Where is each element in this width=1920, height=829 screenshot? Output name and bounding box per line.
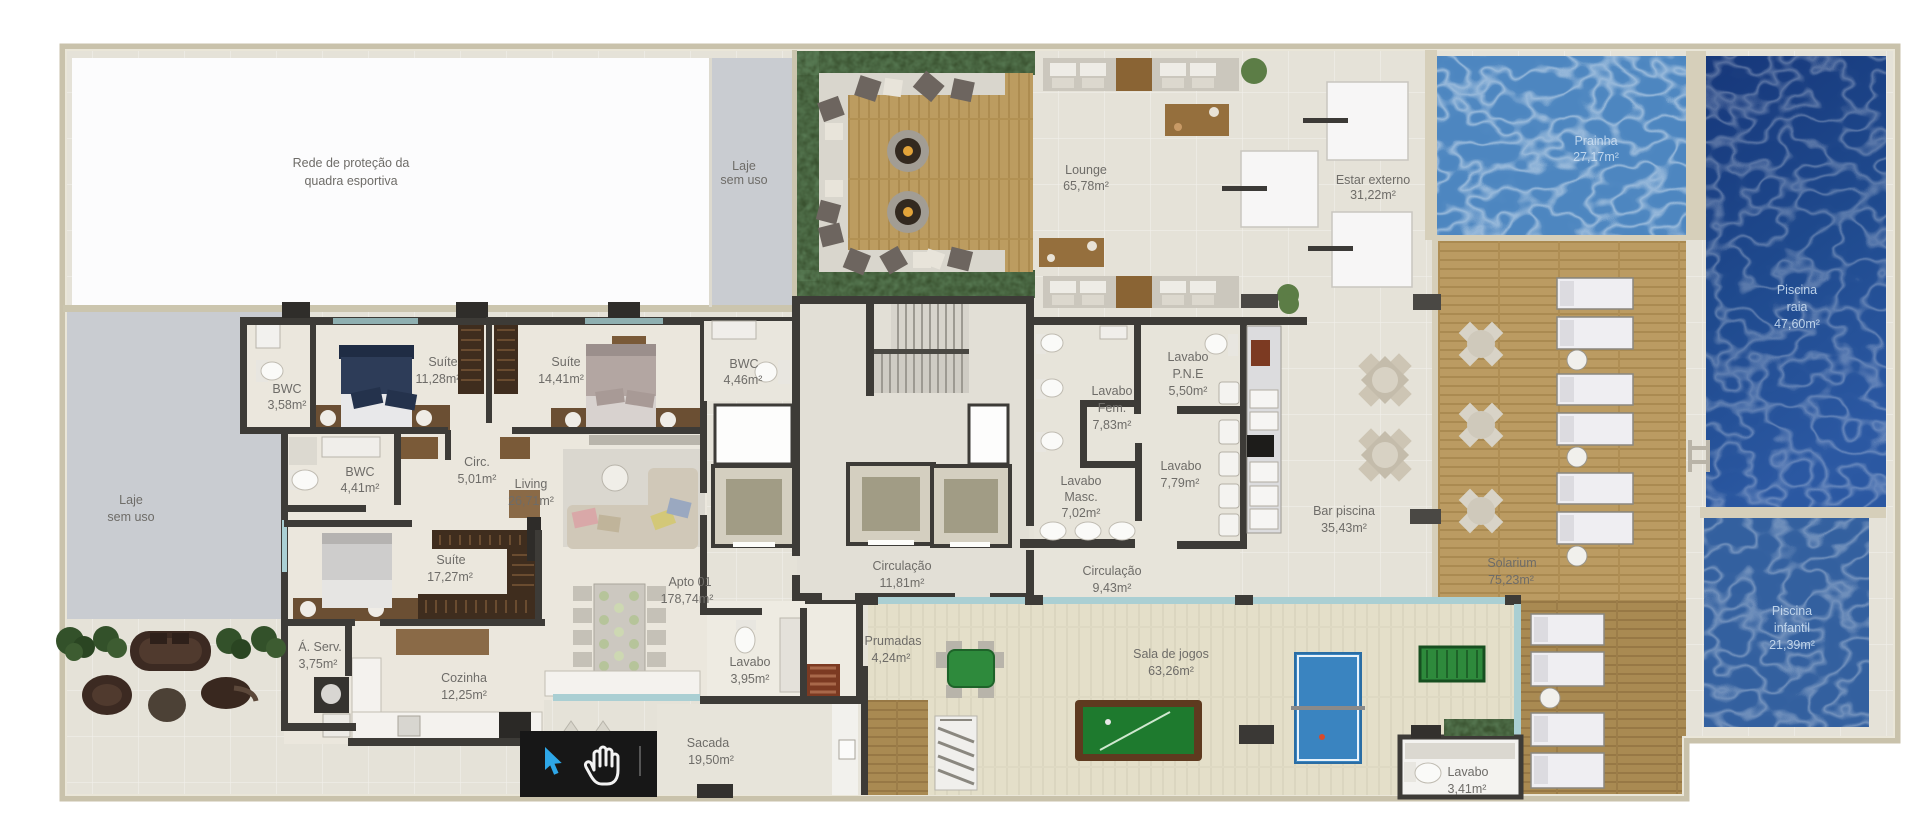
- svg-text:Circ.: Circ.: [464, 455, 490, 469]
- svg-text:Lavabo: Lavabo: [1447, 765, 1488, 779]
- svg-text:63,26m²: 63,26m²: [1148, 664, 1194, 678]
- svg-text:sem uso: sem uso: [720, 173, 767, 187]
- svg-text:11,28m²: 11,28m²: [416, 372, 461, 386]
- svg-text:Masc.: Masc.: [1064, 490, 1097, 504]
- svg-text:11,81m²: 11,81m²: [880, 576, 925, 590]
- svg-text:5,50m²: 5,50m²: [1169, 384, 1208, 398]
- svg-text:Lavabo: Lavabo: [1160, 459, 1201, 473]
- svg-text:Lavabo: Lavabo: [1091, 384, 1132, 398]
- svg-text:7,83m²: 7,83m²: [1093, 418, 1132, 432]
- svg-text:19,50m²: 19,50m²: [688, 753, 734, 767]
- svg-text:31,22m²: 31,22m²: [1350, 188, 1396, 202]
- svg-text:35,43m²: 35,43m²: [1321, 521, 1367, 535]
- svg-text:Circulação: Circulação: [1082, 564, 1141, 578]
- svg-text:9,43m²: 9,43m²: [1093, 581, 1132, 595]
- svg-text:Piscina: Piscina: [1777, 283, 1817, 297]
- svg-text:Sacada: Sacada: [687, 736, 729, 750]
- svg-text:Prumadas: Prumadas: [865, 634, 922, 648]
- svg-text:Solarium: Solarium: [1487, 556, 1536, 570]
- svg-text:3,58m²: 3,58m²: [268, 398, 307, 412]
- svg-text:12,25m²: 12,25m²: [441, 688, 487, 702]
- svg-text:Rede de proteção da: Rede de proteção da: [293, 156, 410, 170]
- svg-text:Suíte: Suíte: [428, 355, 457, 369]
- svg-text:raia: raia: [1787, 300, 1808, 314]
- svg-text:Suíte: Suíte: [436, 553, 465, 567]
- svg-text:Suíte: Suíte: [551, 355, 580, 369]
- svg-text:7,79m²: 7,79m²: [1161, 476, 1200, 490]
- svg-text:21,39m²: 21,39m²: [1769, 638, 1815, 652]
- svg-text:Living: Living: [515, 477, 548, 491]
- svg-text:Lavabo: Lavabo: [1167, 350, 1208, 364]
- svg-text:Prainha: Prainha: [1574, 134, 1617, 148]
- svg-text:3,75m²: 3,75m²: [299, 657, 338, 671]
- svg-text:3,95m²: 3,95m²: [731, 672, 770, 686]
- svg-text:4,41m²: 4,41m²: [341, 481, 380, 495]
- svg-text:27,17m²: 27,17m²: [1573, 150, 1619, 164]
- svg-text:BWC: BWC: [345, 465, 374, 479]
- svg-text:7,02m²: 7,02m²: [1062, 506, 1101, 520]
- svg-text:Á. Serv.: Á. Serv.: [298, 639, 342, 654]
- svg-text:Lounge: Lounge: [1065, 163, 1107, 177]
- svg-text:26,71m²: 26,71m²: [508, 494, 554, 508]
- svg-text:Fem.: Fem.: [1098, 401, 1126, 415]
- svg-text:Lavabo: Lavabo: [1060, 474, 1101, 488]
- svg-text:quadra esportiva: quadra esportiva: [304, 174, 397, 188]
- svg-text:Piscina: Piscina: [1772, 604, 1812, 618]
- svg-text:sem uso: sem uso: [107, 510, 154, 524]
- svg-text:178,74m²: 178,74m²: [661, 592, 714, 606]
- svg-text:47,60m²: 47,60m²: [1774, 317, 1820, 331]
- svg-text:Bar piscina: Bar piscina: [1313, 504, 1375, 518]
- svg-text:5,01m²: 5,01m²: [458, 472, 497, 486]
- svg-text:75,23m²: 75,23m²: [1488, 573, 1534, 587]
- svg-text:BWC: BWC: [729, 357, 758, 371]
- svg-text:Cozinha: Cozinha: [441, 671, 487, 685]
- svg-text:Lavabo: Lavabo: [729, 655, 770, 669]
- svg-text:14,41m²: 14,41m²: [538, 372, 584, 386]
- svg-text:infantil: infantil: [1774, 621, 1810, 635]
- svg-text:Laje: Laje: [732, 159, 756, 173]
- svg-text:BWC: BWC: [272, 382, 301, 396]
- svg-text:Laje: Laje: [119, 493, 143, 507]
- svg-text:4,46m²: 4,46m²: [724, 373, 763, 387]
- svg-text:4,24m²: 4,24m²: [872, 651, 911, 665]
- svg-text:17,27m²: 17,27m²: [427, 570, 473, 584]
- svg-text:3,41m²: 3,41m²: [1448, 782, 1487, 796]
- svg-text:Estar externo: Estar externo: [1336, 173, 1410, 187]
- svg-text:Sala de jogos: Sala de jogos: [1133, 647, 1209, 661]
- svg-text:P.N.E: P.N.E: [1172, 367, 1203, 381]
- svg-text:Circulação: Circulação: [872, 559, 931, 573]
- svg-text:Apto 01: Apto 01: [668, 575, 711, 589]
- svg-text:65,78m²: 65,78m²: [1063, 179, 1109, 193]
